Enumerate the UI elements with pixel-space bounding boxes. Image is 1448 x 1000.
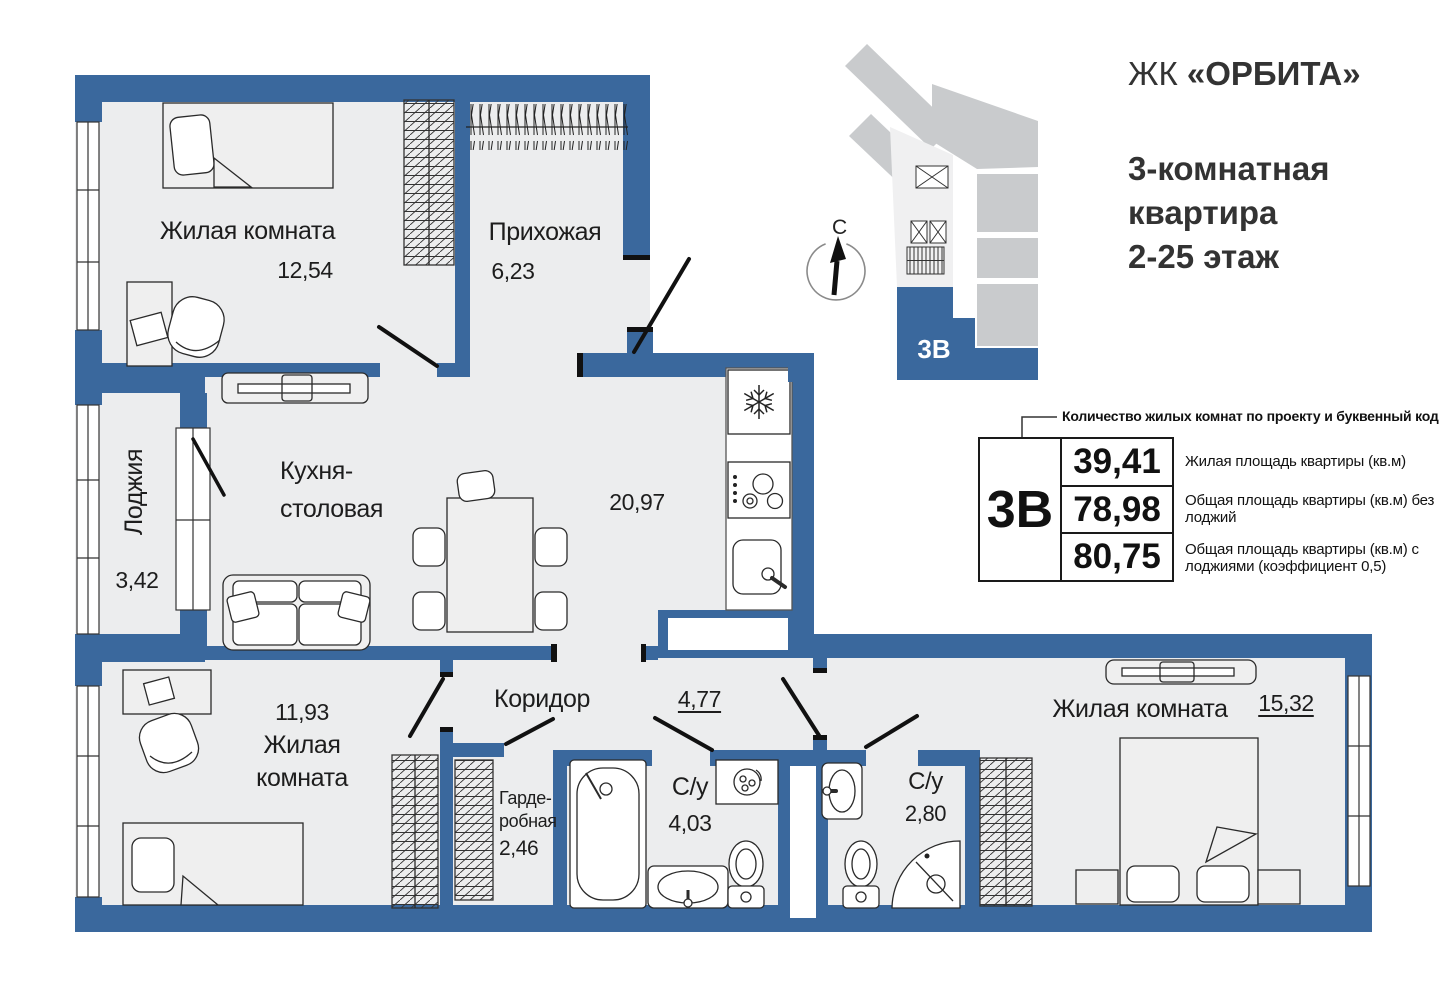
wardrobe-icon xyxy=(980,758,1032,906)
compass xyxy=(807,236,865,300)
subtitle-line1: 3-комнатная xyxy=(1128,147,1388,191)
callout-line xyxy=(1022,417,1057,437)
kitchen-label-line2: столовая xyxy=(280,490,383,528)
building-block xyxy=(977,174,1038,232)
compass-arrow-icon xyxy=(830,236,846,263)
living-area-description: Жилая площадь квартиры (кв.м) xyxy=(1185,437,1447,485)
building-block xyxy=(977,238,1038,278)
room-area-bath2: 2,80 xyxy=(893,801,958,827)
area-info-table: 3В 39,41 78,98 80,75 xyxy=(978,437,1174,582)
floorplan-page: ЖК «ОРБИТА» 3-комнатная квартира 2-25 эт… xyxy=(0,0,1448,1000)
area-descriptions: Жилая площадь квартиры (кв.м) Общая площ… xyxy=(1185,437,1447,582)
washing-machine-icon xyxy=(716,760,778,804)
bed-icon xyxy=(163,103,333,188)
tv-stand-icon xyxy=(1106,660,1256,684)
room-label-bedroom1: Жилая комната xyxy=(155,216,340,246)
toilet-icon xyxy=(728,841,764,908)
wardrobe-icon xyxy=(392,755,438,908)
room-label-bedroom2: 11,93 Жилая комната xyxy=(243,696,361,795)
bath1-label: С/у xyxy=(655,772,725,802)
balcony-door-block xyxy=(176,428,210,610)
window-bedroom1 xyxy=(77,122,99,330)
toilet-icon xyxy=(843,841,879,908)
room-label-corridor: Коридор xyxy=(487,684,597,714)
building-block xyxy=(977,284,1038,346)
room-label-bedroom3: Жилая комната xyxy=(1050,694,1230,724)
coat-rack-icon xyxy=(466,104,628,150)
complex-prefix: ЖК xyxy=(1128,55,1178,92)
compass-north-label: С xyxy=(832,216,847,240)
room-area-kitchen: 20,97 xyxy=(607,489,667,517)
unit-highlight xyxy=(788,357,812,382)
complex-title: ЖК «ОРБИТА» xyxy=(1128,55,1388,93)
table-callout-label: Количество жилых комнат по проекту и бук… xyxy=(1062,408,1439,424)
double-bed-icon xyxy=(1120,738,1258,905)
wardrobe-label-line1: Гарде- xyxy=(499,787,557,810)
sink-icon xyxy=(648,866,728,908)
wardrobe-icon xyxy=(455,760,493,900)
stairs-icon xyxy=(907,247,944,274)
room-label-bath2: С/у 2,80 xyxy=(893,768,958,827)
room-area-bath1: 4,03 xyxy=(655,810,725,838)
total-area-description: Общая площадь квартиры (кв.м) без лоджий xyxy=(1185,485,1447,533)
unit-code-cell: 3В xyxy=(980,439,1062,580)
wardrobe-icon xyxy=(404,100,454,265)
room-label-wardrobe-room: Гарде- робная 2,46 xyxy=(499,787,557,861)
sink-icon xyxy=(822,763,862,819)
tv-stand-icon xyxy=(222,373,368,403)
kitchen-units xyxy=(726,368,792,610)
area-values-column: 39,41 78,98 80,75 xyxy=(1062,439,1172,580)
room-area-loggia: 3,42 xyxy=(107,567,167,595)
wardrobe-label-line2: робная xyxy=(499,810,557,833)
room-area-hallway: 6,23 xyxy=(483,258,543,286)
sofa-icon xyxy=(223,575,371,650)
bedroom2-label-line1: Жилая xyxy=(243,729,361,762)
bathtub-icon xyxy=(570,760,646,908)
desk-icon xyxy=(127,282,172,366)
subtitle-line2: квартира xyxy=(1128,191,1388,235)
fridge-icon xyxy=(728,370,790,434)
total-area-value: 78,98 xyxy=(1062,487,1172,535)
bed-icon xyxy=(123,823,303,905)
subtitle-line3: 2-25 этаж xyxy=(1128,235,1388,279)
header: ЖК «ОРБИТА» 3-комнатная квартира 2-25 эт… xyxy=(1128,55,1388,279)
complex-name: «ОРБИТА» xyxy=(1187,55,1361,92)
room-label-loggia: Лоджия xyxy=(119,422,149,562)
room-label-bath1: С/у 4,03 xyxy=(655,772,725,838)
kitchen-label-line1: Кухня- xyxy=(280,452,383,490)
window-bedroom3 xyxy=(1348,676,1370,886)
room-label-kitchen: Кухня- столовая xyxy=(280,452,383,528)
building-locator xyxy=(788,44,1038,382)
elevator-icon xyxy=(916,166,948,188)
room-label-hallway: Прихожая xyxy=(480,217,610,247)
bedroom2-label-line2: комната xyxy=(243,762,361,795)
room-area-wardrobe-room: 2,46 xyxy=(499,836,557,861)
total-area-with-loggia-value: 80,75 xyxy=(1062,534,1172,580)
locator-unit-code: 3В xyxy=(914,334,954,365)
room-area-corridor: 4,77 xyxy=(672,686,727,714)
window-bedroom2 xyxy=(77,686,99,897)
total-area-with-loggia-description: Общая площадь квартиры (кв.м) с лоджиями… xyxy=(1185,534,1447,582)
room-area-bedroom3: 15,32 xyxy=(1256,690,1316,718)
room-area-bedroom1: 12,54 xyxy=(270,257,340,285)
bath2-label: С/у xyxy=(893,768,958,797)
apartment-subtitle: 3-комнатная квартира 2-25 этаж xyxy=(1128,147,1388,279)
stove-icon xyxy=(728,462,790,518)
desk-icon xyxy=(123,670,211,714)
window-loggia xyxy=(77,405,99,634)
living-area-value: 39,41 xyxy=(1062,439,1172,487)
room-area-bedroom2: 11,93 xyxy=(243,696,361,729)
